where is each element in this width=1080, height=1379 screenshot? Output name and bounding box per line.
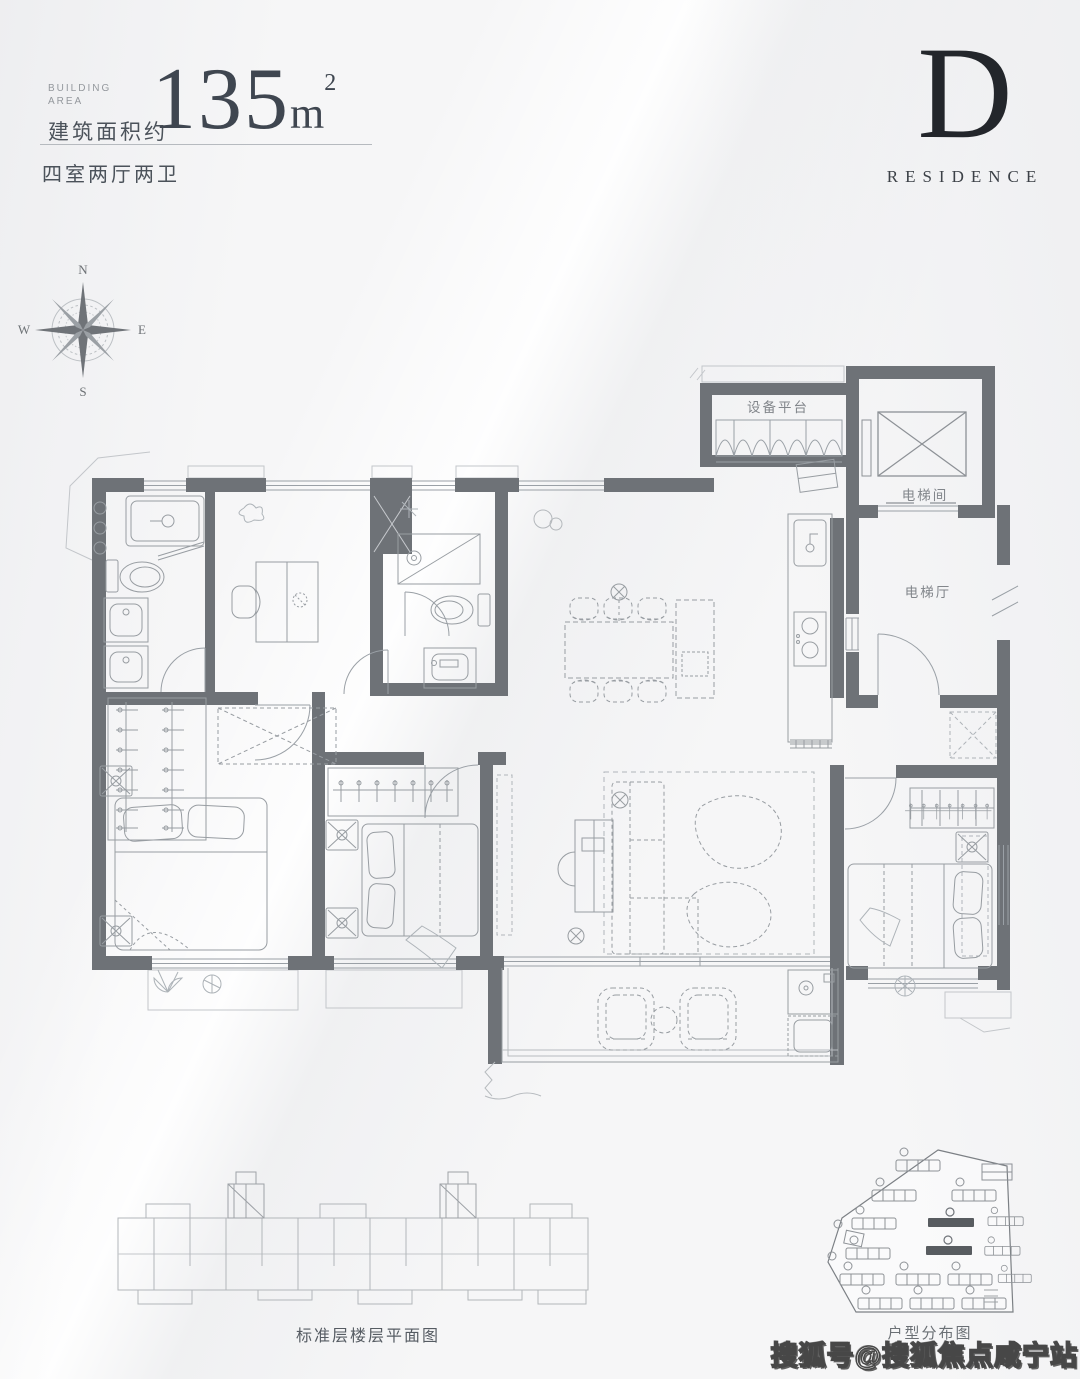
walls <box>92 366 1010 1065</box>
equipment-platform-vents <box>716 420 842 462</box>
plan-graphics: N E S W <box>0 0 1080 1379</box>
label-elevator-hall: 电梯厅 <box>905 585 952 600</box>
bathroom-1 <box>94 496 204 688</box>
dining-area <box>534 510 714 702</box>
unit-distribution-map <box>828 1148 1031 1312</box>
standard-floor-mini-plan <box>118 1172 588 1304</box>
label-elevator-room: 电梯间 <box>902 488 949 503</box>
hall-closet <box>950 712 996 758</box>
balcony <box>485 968 838 1099</box>
master-bedroom <box>100 698 336 993</box>
compass-rose-icon: N E S W <box>18 262 146 399</box>
main-floor-plan: 设备平台 电梯间 电梯厅 <box>66 366 1018 1099</box>
watermark: 搜狐号@搜狐焦点咸宁站 <box>771 1334 1080 1373</box>
compass-north-label: N <box>78 262 88 277</box>
compass-south-label: S <box>79 384 86 399</box>
bedroom-3 <box>848 788 994 996</box>
compass-west-label: W <box>18 322 31 337</box>
doors <box>161 592 939 829</box>
bedroom-2 <box>326 768 478 968</box>
standard-floor-caption: 标准层楼层平面图 <box>238 1322 498 1346</box>
compass-east-label: E <box>138 322 146 337</box>
label-equipment-platform: 设备平台 <box>747 399 809 415</box>
floorplan-poster: BUILDING AREA 建筑面积约 135m2 四室两厅两卫 D RESID… <box>0 0 1080 1379</box>
